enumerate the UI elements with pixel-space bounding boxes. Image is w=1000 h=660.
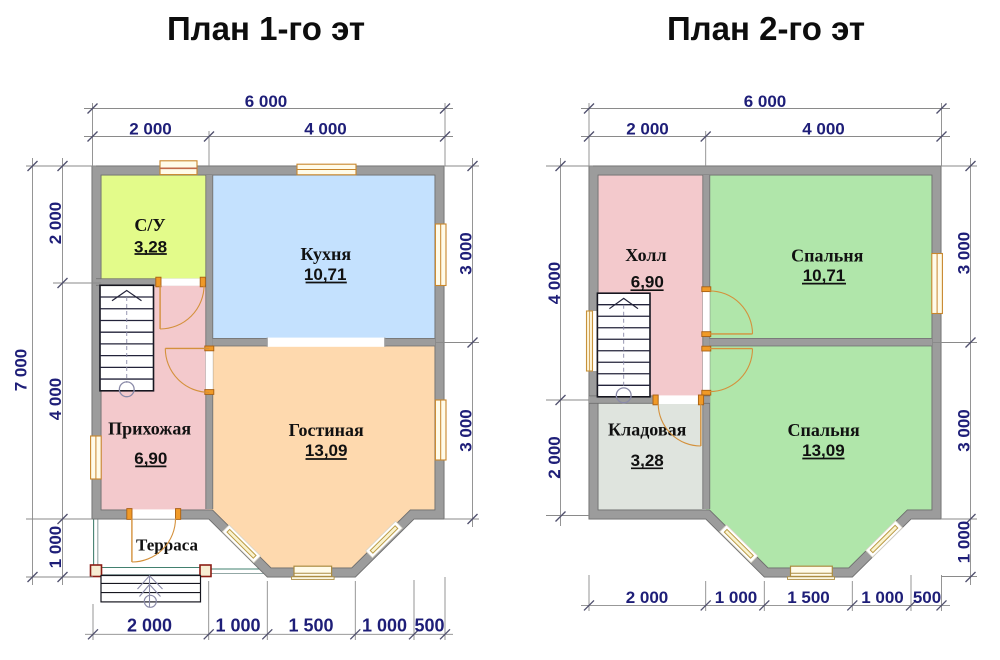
svg-text:1 000: 1 000 bbox=[46, 526, 65, 569]
svg-text:План 1-го эт: План 1-го эт bbox=[167, 10, 365, 47]
svg-text:2 000: 2 000 bbox=[626, 120, 669, 139]
svg-text:2 000: 2 000 bbox=[127, 616, 172, 636]
svg-text:Кухня: Кухня bbox=[300, 244, 351, 264]
svg-text:7 000: 7 000 bbox=[12, 349, 31, 392]
svg-text:4 000: 4 000 bbox=[545, 262, 564, 305]
svg-text:2 000: 2 000 bbox=[626, 588, 669, 607]
svg-text:Спальня: Спальня bbox=[791, 246, 864, 266]
svg-text:10,71: 10,71 bbox=[803, 266, 846, 285]
svg-text:План 2-го эт: План 2-го эт bbox=[667, 10, 865, 47]
svg-text:Гостиная: Гостиная bbox=[289, 420, 364, 440]
svg-text:3 000: 3 000 bbox=[955, 409, 974, 452]
svg-text:2 000: 2 000 bbox=[545, 436, 564, 479]
svg-text:1 000: 1 000 bbox=[715, 588, 758, 607]
svg-text:1 000: 1 000 bbox=[955, 521, 974, 564]
svg-text:6 000: 6 000 bbox=[245, 92, 288, 111]
svg-text:Холл: Холл bbox=[625, 245, 666, 265]
svg-text:1 000: 1 000 bbox=[215, 616, 260, 636]
svg-text:2 000: 2 000 bbox=[129, 120, 172, 139]
svg-text:Прихожая: Прихожая bbox=[108, 419, 191, 439]
svg-text:4 000: 4 000 bbox=[304, 120, 347, 139]
svg-text:4 000: 4 000 bbox=[802, 120, 845, 139]
svg-text:6,90: 6,90 bbox=[134, 449, 167, 468]
svg-text:13,09: 13,09 bbox=[305, 441, 348, 460]
svg-text:3,28: 3,28 bbox=[631, 451, 664, 470]
svg-text:3 000: 3 000 bbox=[457, 409, 476, 452]
svg-text:3 000: 3 000 bbox=[955, 232, 974, 275]
svg-text:1 500: 1 500 bbox=[787, 588, 830, 607]
svg-text:500: 500 bbox=[414, 616, 444, 636]
svg-text:4 000: 4 000 bbox=[46, 378, 65, 421]
svg-text:13,09: 13,09 bbox=[802, 441, 845, 460]
svg-text:Терраса: Терраса bbox=[136, 536, 198, 555]
svg-text:6,90: 6,90 bbox=[631, 272, 664, 291]
svg-text:2 000: 2 000 bbox=[46, 202, 65, 245]
svg-text:1 500: 1 500 bbox=[288, 616, 333, 636]
svg-text:1 000: 1 000 bbox=[362, 616, 407, 636]
svg-text:10,71: 10,71 bbox=[304, 265, 347, 284]
svg-text:С/У: С/У bbox=[134, 215, 165, 235]
svg-text:Спальня: Спальня bbox=[787, 420, 860, 440]
svg-text:1 000: 1 000 bbox=[861, 588, 904, 607]
svg-text:500: 500 bbox=[913, 588, 941, 607]
svg-text:6 000: 6 000 bbox=[744, 92, 787, 111]
svg-text:3 000: 3 000 bbox=[457, 232, 476, 275]
